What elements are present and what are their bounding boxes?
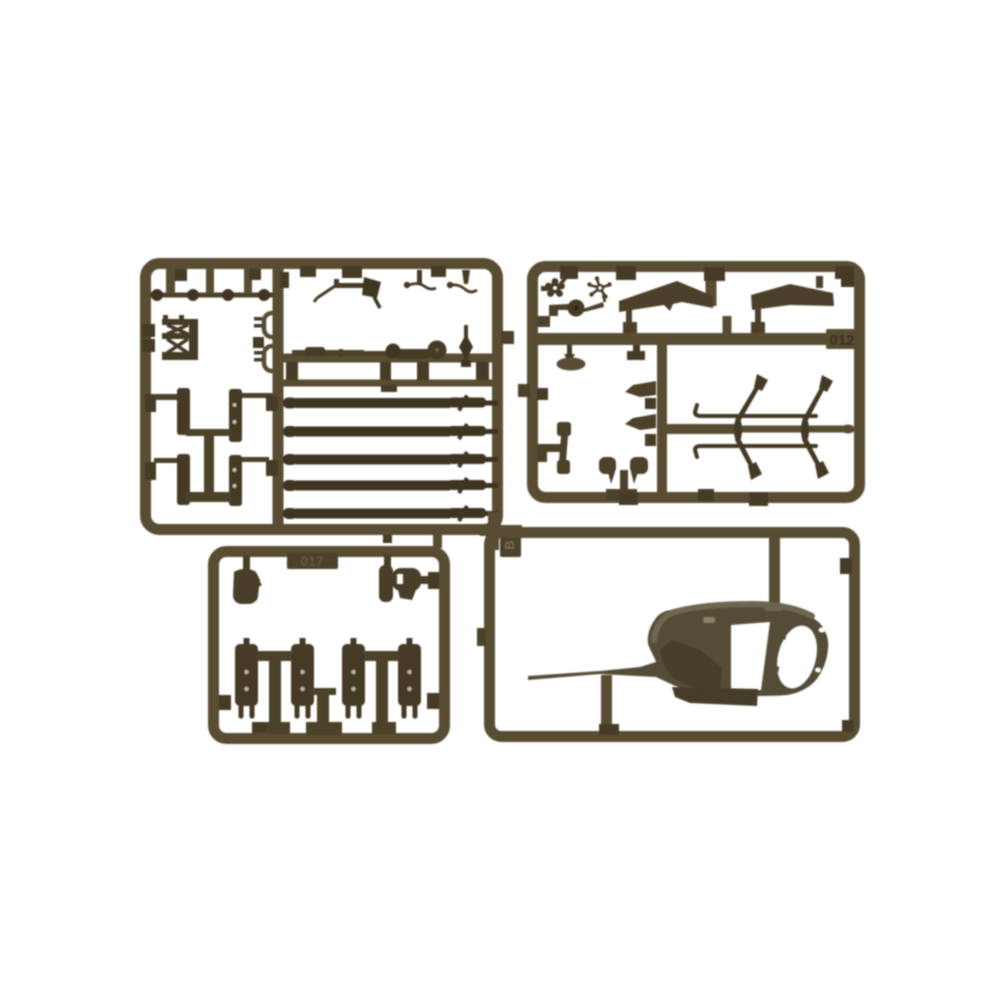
svg-text:012: 012 (829, 332, 854, 349)
svg-text:017: 017 (300, 553, 324, 569)
svg-text:B: B (502, 540, 517, 549)
